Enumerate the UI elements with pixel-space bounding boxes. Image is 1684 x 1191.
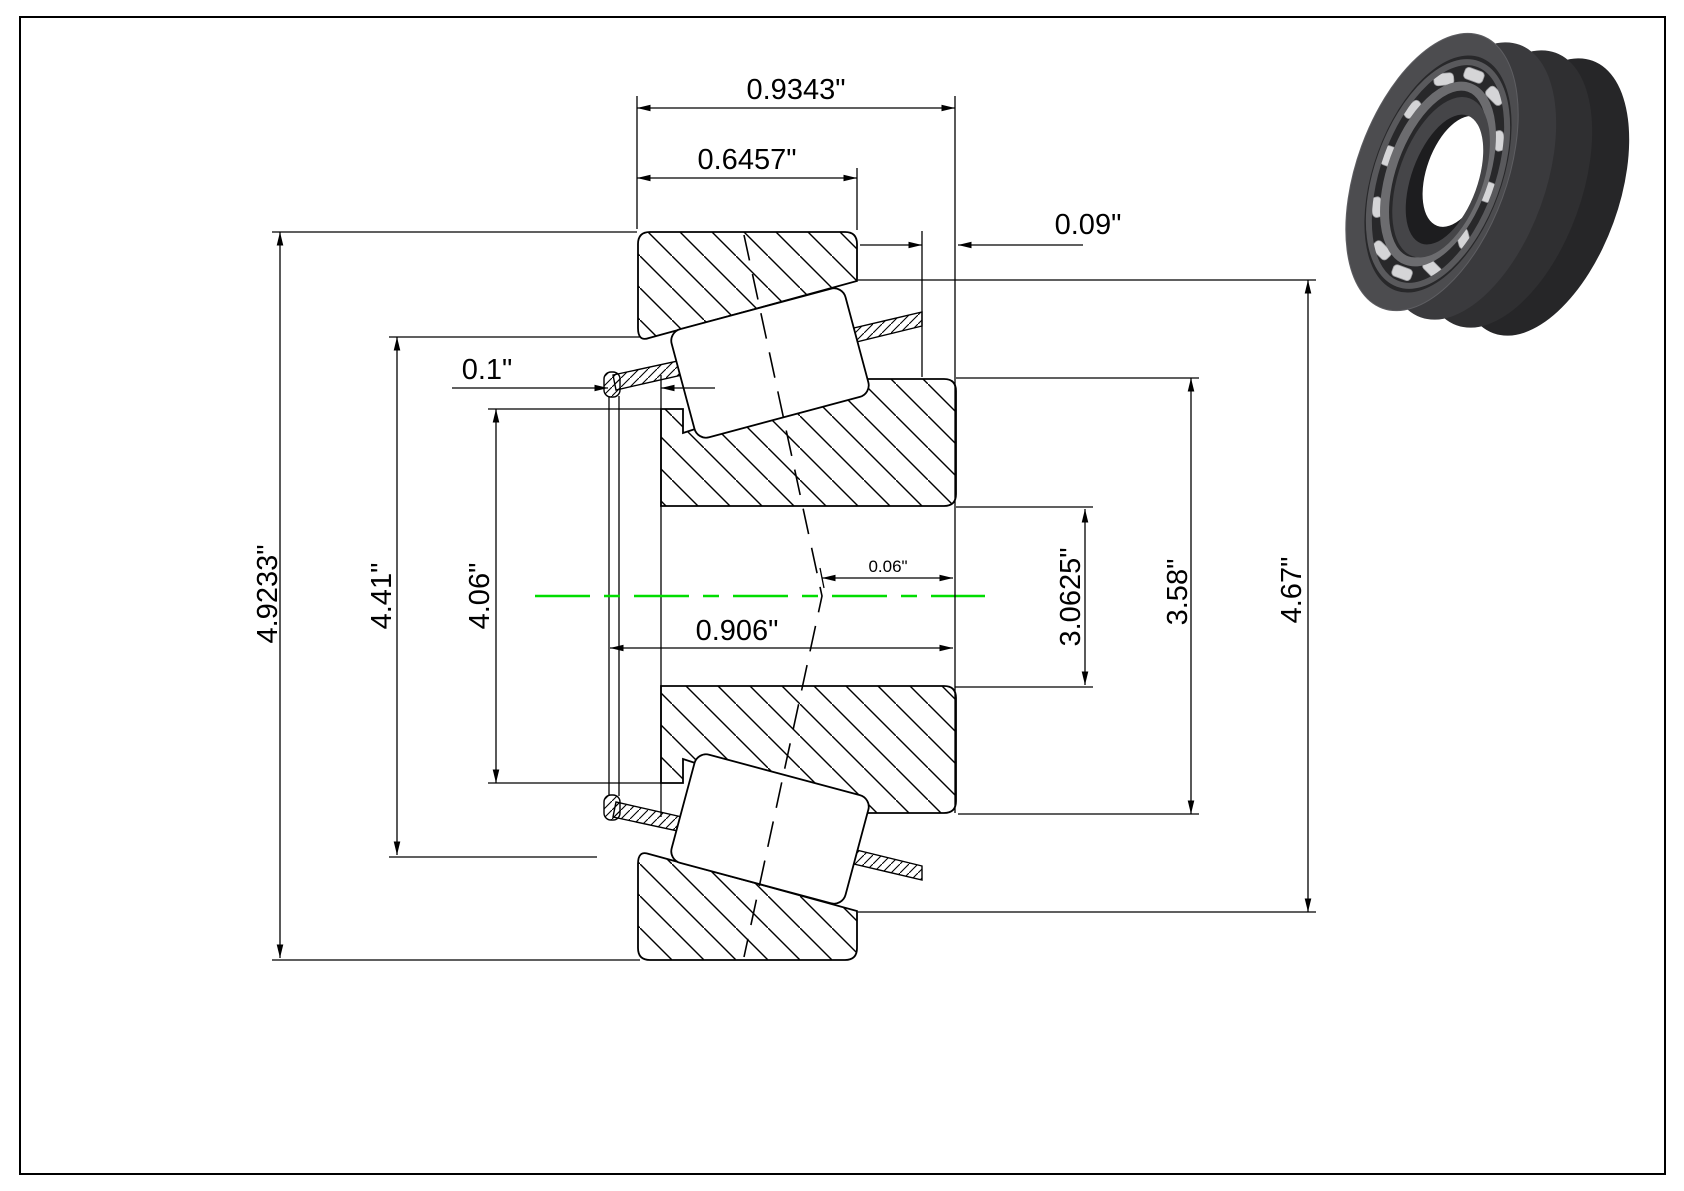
label-od-d: 4.67"	[1276, 557, 1308, 624]
drawing-page: 0.9343" 0.6457" 0.09" 0.1" 0.06" 0.906" …	[0, 0, 1684, 1191]
bearing-section	[535, 232, 985, 960]
bearing-3d-render	[1312, 10, 1663, 359]
label-load-center: 0.06"	[868, 557, 907, 576]
label-stickout-back: 0.09"	[1055, 209, 1122, 241]
label-cup-width: 0.6457"	[698, 144, 797, 176]
label-bore: 3.0625"	[1055, 548, 1087, 647]
label-od-c: 4.06"	[464, 563, 496, 630]
label-cone-width: 0.906"	[696, 615, 779, 647]
label-stickout-front: 0.1"	[462, 354, 513, 386]
technical-drawing: 0.9343" 0.6457" 0.09" 0.1" 0.06" 0.906" …	[0, 0, 1684, 1191]
label-id-b: 3.58"	[1162, 559, 1194, 626]
label-od-b: 4.41"	[366, 563, 398, 630]
label-od-a: 4.9233"	[252, 545, 284, 644]
label-overall-width: 0.9343"	[747, 74, 846, 106]
